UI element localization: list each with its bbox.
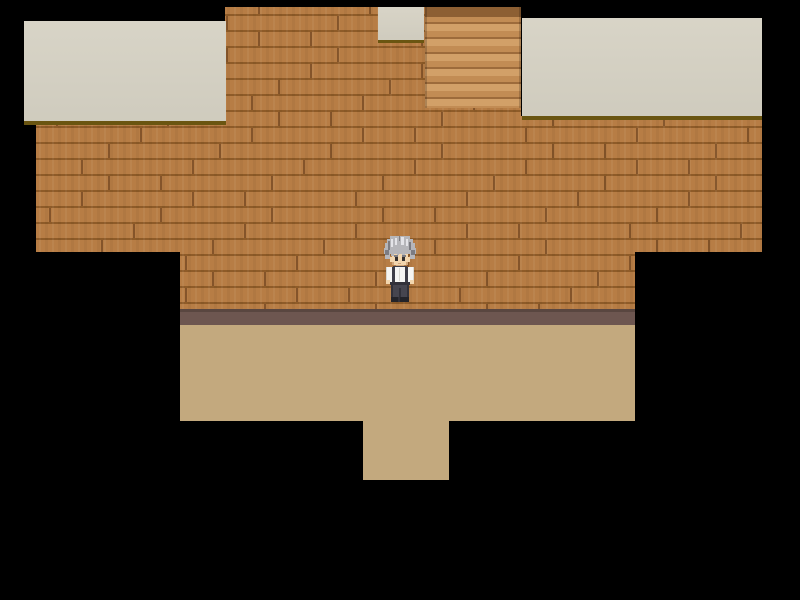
plank-joint xyxy=(323,240,325,254)
plank-joint xyxy=(36,0,38,14)
plank-joint xyxy=(434,240,436,254)
plank-joint xyxy=(153,304,155,318)
plank-joint xyxy=(604,176,606,190)
player-character[interactable] xyxy=(382,236,418,302)
plank-joint xyxy=(296,288,298,302)
plank-joint xyxy=(389,80,391,94)
plank-joint xyxy=(486,272,488,286)
plank-joint xyxy=(108,144,110,158)
plank-joint xyxy=(740,256,742,270)
plank-joint xyxy=(382,208,384,222)
plank-joint xyxy=(192,160,194,174)
plank-joint xyxy=(101,272,103,286)
plank-joint xyxy=(140,128,142,142)
plank-joint xyxy=(330,112,332,126)
plank-joint xyxy=(296,256,298,270)
plank-joint xyxy=(414,160,416,174)
plank-joint xyxy=(303,160,305,174)
plank-joint xyxy=(702,0,704,14)
plank-joint xyxy=(42,304,44,318)
plank-joint xyxy=(185,256,187,270)
plank-joint xyxy=(147,0,149,14)
game-viewport xyxy=(0,0,800,600)
plank-joint xyxy=(708,272,710,286)
plank-joint xyxy=(362,96,364,110)
plank-joint xyxy=(636,128,638,142)
plank-joint xyxy=(570,288,572,302)
plank-joint xyxy=(369,0,371,14)
plank-joint xyxy=(466,192,468,206)
plank-joint xyxy=(108,176,110,190)
plank-joint xyxy=(591,0,593,14)
plank-joint xyxy=(636,160,638,174)
plank-joint xyxy=(226,16,228,30)
plank-joint xyxy=(271,176,273,190)
wall-base-ledge xyxy=(180,309,635,325)
plank-joint xyxy=(441,112,443,126)
plank-joint xyxy=(355,224,357,238)
plank-joint xyxy=(310,64,312,78)
plank-joint xyxy=(258,32,260,46)
plank-joint xyxy=(74,256,76,270)
torso xyxy=(386,265,414,284)
plank-joint xyxy=(160,176,162,190)
plank-joint xyxy=(681,288,683,302)
roof-section-right xyxy=(522,18,762,120)
plank-joint xyxy=(545,208,547,222)
plank-joint xyxy=(337,48,339,62)
plank-joint xyxy=(604,144,606,158)
plank-joint xyxy=(434,208,436,222)
plank-joint xyxy=(525,160,527,174)
plank-joint xyxy=(459,288,461,302)
plank-joint xyxy=(597,272,599,286)
plank-joint xyxy=(552,144,554,158)
plank-joint xyxy=(278,112,280,126)
plank-joint xyxy=(278,80,280,94)
plank-joint xyxy=(74,288,76,302)
plank-joint xyxy=(49,208,51,222)
plank-joint xyxy=(244,224,246,238)
plank-joint xyxy=(656,208,658,222)
plank-joint xyxy=(493,176,495,190)
plank-joint xyxy=(212,240,214,254)
plank-joint xyxy=(219,144,221,158)
plank-joint xyxy=(747,128,749,142)
plank-joint xyxy=(414,128,416,142)
staircase-tile[interactable] xyxy=(425,7,521,108)
plank-joint xyxy=(160,208,162,222)
plank-joint xyxy=(251,96,253,110)
plank-joint xyxy=(337,16,339,30)
plank-joint xyxy=(466,224,468,238)
plank-joint xyxy=(525,128,527,142)
plank-joint xyxy=(441,144,443,158)
plank-joint xyxy=(375,272,377,286)
plank-joint xyxy=(518,224,520,238)
plank-joint xyxy=(101,240,103,254)
roof-section-left xyxy=(24,21,226,125)
plank-joint xyxy=(649,304,651,318)
floor-extension[interactable] xyxy=(363,421,449,480)
plank-joint xyxy=(226,48,228,62)
plank-joint xyxy=(715,176,717,190)
plank-joint xyxy=(708,240,710,254)
plank-joint xyxy=(545,240,547,254)
plank-joint xyxy=(310,32,312,46)
plank-joint xyxy=(81,192,83,206)
plank-joint xyxy=(348,288,350,302)
floor[interactable] xyxy=(180,325,635,421)
plank-joint xyxy=(688,160,690,174)
plank-joint xyxy=(382,176,384,190)
plank-joint xyxy=(421,64,423,78)
plank-joint xyxy=(271,208,273,222)
plank-joint xyxy=(330,144,332,158)
plank-joint xyxy=(577,192,579,206)
plank-joint xyxy=(264,272,266,286)
plank-joint xyxy=(133,224,135,238)
roof-section-top xyxy=(378,7,424,43)
plank-joint xyxy=(251,128,253,142)
plank-joint xyxy=(656,240,658,254)
plank-joint xyxy=(192,192,194,206)
plank-joint xyxy=(362,128,364,142)
plank-joint xyxy=(629,224,631,238)
plank-joint xyxy=(629,256,631,270)
plank-joint xyxy=(688,192,690,206)
plank-joint xyxy=(212,272,214,286)
plank-joint xyxy=(258,0,260,14)
plank-joint xyxy=(185,288,187,302)
face xyxy=(390,250,410,265)
plank-joint xyxy=(81,160,83,174)
plank-joint xyxy=(244,192,246,206)
legs xyxy=(390,282,410,302)
plank-joint xyxy=(518,256,520,270)
plank-joint xyxy=(355,192,357,206)
plank-joint xyxy=(740,224,742,238)
plank-joint xyxy=(715,144,717,158)
